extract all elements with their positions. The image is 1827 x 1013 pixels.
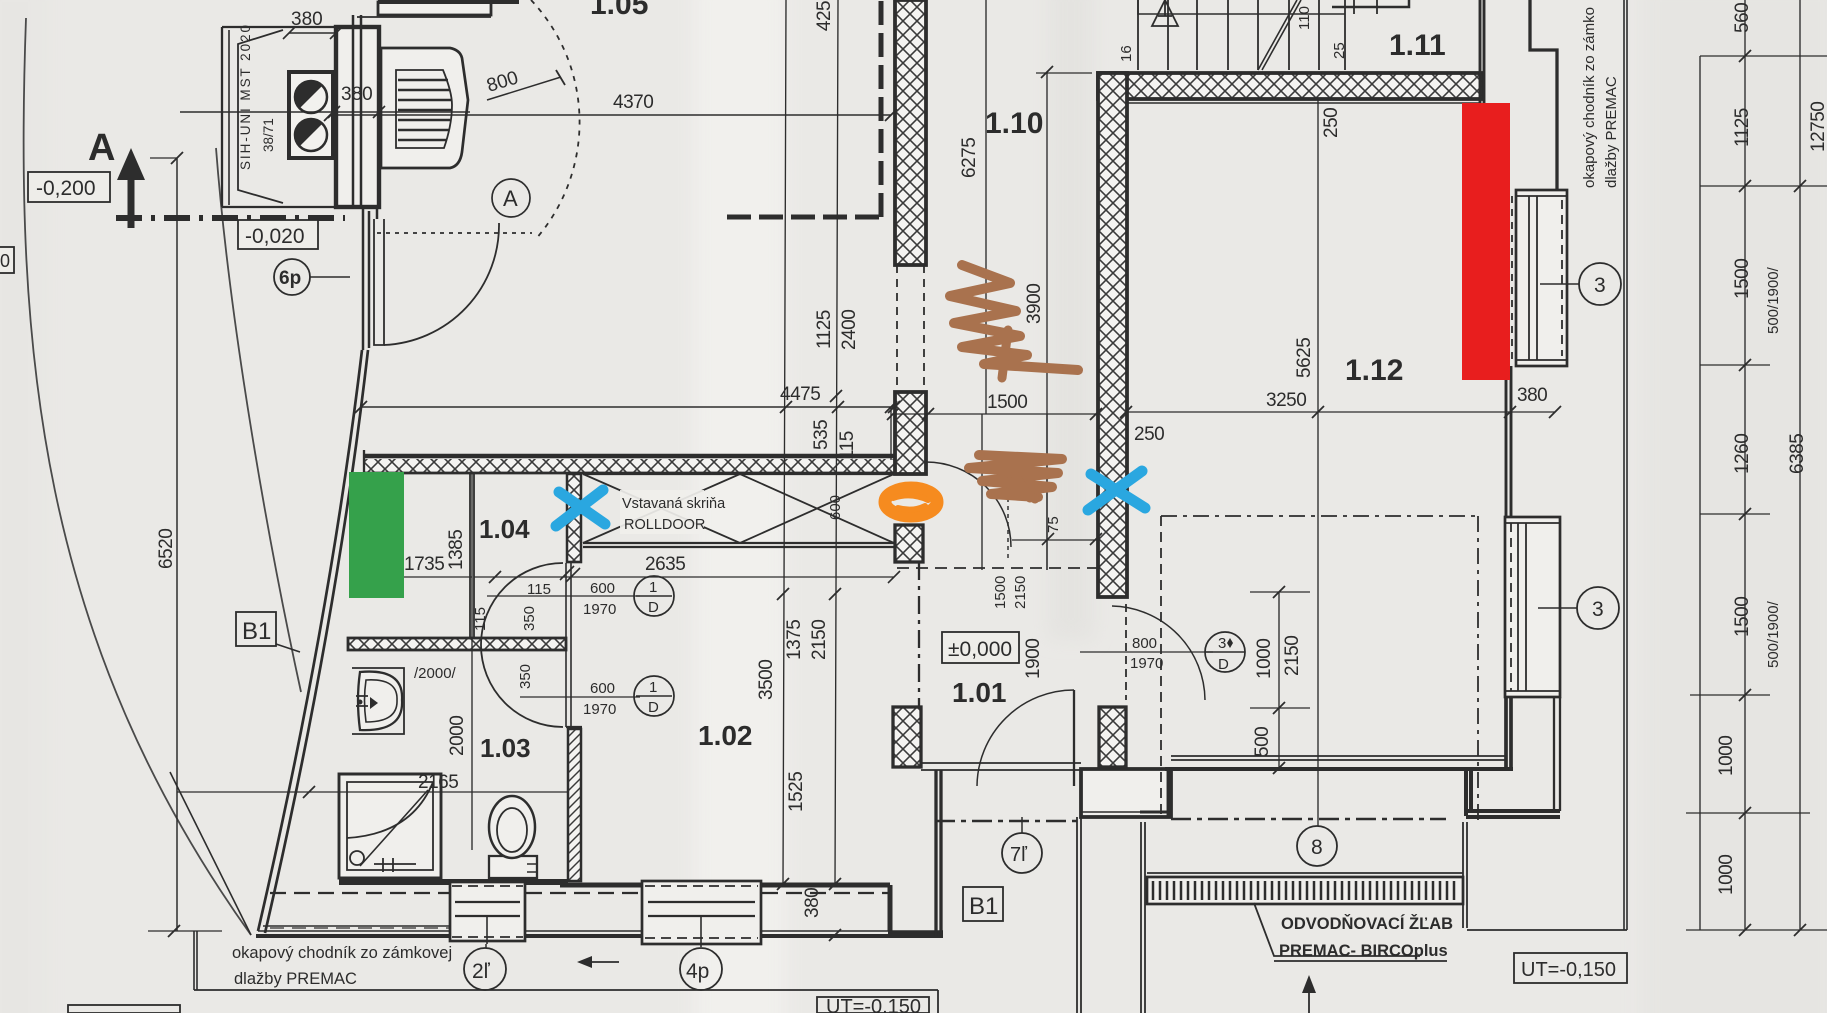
svg-text:-0,020: -0,020 — [245, 225, 305, 248]
svg-text:±0,000: ±0,000 — [948, 638, 1012, 661]
svg-text:/2000/: /2000/ — [414, 665, 457, 682]
svg-text:A: A — [503, 186, 518, 211]
svg-text:1125: 1125 — [1732, 108, 1753, 147]
svg-text:1500: 1500 — [992, 576, 1009, 609]
svg-text:500/1900/: 500/1900/ — [1765, 600, 1782, 668]
svg-text:okapový chodník zo zámkovej: okapový chodník zo zámkovej — [232, 944, 452, 962]
svg-text:380: 380 — [341, 84, 373, 105]
svg-text:2635: 2635 — [645, 554, 685, 575]
svg-text:5625: 5625 — [1294, 338, 1315, 378]
svg-text:D: D — [648, 599, 659, 616]
svg-text:1500: 1500 — [1732, 597, 1753, 637]
svg-text:3: 3 — [1218, 635, 1226, 652]
svg-text:1000: 1000 — [1254, 639, 1275, 679]
svg-text:25: 25 — [1331, 42, 1348, 59]
svg-text:3: 3 — [1592, 598, 1604, 621]
svg-text:7ľ: 7ľ — [1010, 844, 1028, 866]
svg-text:D: D — [1218, 656, 1229, 673]
svg-text:3250: 3250 — [1266, 390, 1306, 411]
svg-text:2165: 2165 — [418, 772, 458, 793]
svg-text:1.04: 1.04 — [479, 514, 530, 544]
svg-text:600: 600 — [827, 495, 844, 520]
svg-text:B1: B1 — [969, 893, 998, 920]
svg-text:UT=-0,150: UT=-0,150 — [1521, 959, 1616, 981]
svg-text:380: 380 — [802, 888, 823, 918]
svg-text:115: 115 — [472, 607, 489, 631]
svg-text:0: 0 — [0, 251, 10, 271]
svg-text:1.11: 1.11 — [1389, 29, 1446, 62]
svg-text:1.01: 1.01 — [952, 677, 1007, 708]
svg-text:6520: 6520 — [156, 529, 177, 569]
svg-text:dlažby PREMAC: dlažby PREMAC — [1603, 76, 1620, 188]
svg-text:1.02: 1.02 — [698, 720, 753, 751]
svg-text:1000: 1000 — [1716, 855, 1737, 895]
svg-text:1735: 1735 — [404, 554, 444, 575]
svg-text:1375: 1375 — [784, 620, 805, 660]
svg-text:3: 3 — [1594, 274, 1606, 297]
svg-text:250: 250 — [1134, 424, 1164, 445]
svg-text:1500: 1500 — [987, 392, 1027, 413]
svg-text:D: D — [648, 699, 659, 716]
svg-text:ROLLDOOR: ROLLDOOR — [624, 517, 705, 533]
svg-text:38/71: 38/71 — [261, 118, 276, 152]
svg-text:1525: 1525 — [786, 772, 807, 812]
svg-text:1970: 1970 — [1130, 655, 1163, 672]
svg-text:PREMAC- BIRCOplus: PREMAC- BIRCOplus — [1279, 942, 1448, 960]
svg-text:UT=-0,150: UT=-0,150 — [826, 996, 921, 1013]
svg-text:600: 600 — [590, 680, 615, 697]
svg-text:B1: B1 — [242, 618, 271, 645]
svg-text:6p: 6p — [279, 268, 301, 289]
svg-text:12750: 12750 — [1808, 102, 1827, 152]
svg-text:2150: 2150 — [809, 620, 830, 660]
svg-text:110: 110 — [1296, 6, 1313, 30]
svg-text:1.05: 1.05 — [590, 0, 648, 21]
svg-text:2400: 2400 — [839, 310, 860, 350]
svg-text:1385: 1385 — [446, 530, 467, 570]
svg-text:Vstavaná skriňa: Vstavaná skriňa — [622, 496, 726, 512]
svg-text:800: 800 — [1132, 635, 1157, 652]
svg-text:250: 250 — [1321, 108, 1342, 138]
svg-text:4p: 4p — [686, 960, 709, 983]
svg-text:1900: 1900 — [1023, 639, 1044, 679]
svg-text:2150: 2150 — [1012, 576, 1029, 609]
svg-text:6275: 6275 — [959, 138, 980, 178]
svg-text:1: 1 — [649, 679, 657, 696]
svg-text:1: 1 — [649, 579, 657, 596]
svg-text:380: 380 — [1517, 385, 1547, 406]
svg-text:535: 535 — [811, 420, 832, 450]
svg-text:115: 115 — [837, 431, 858, 460]
svg-text:ODVODŇOVACÍ ŽĽAB: ODVODŇOVACÍ ŽĽAB — [1281, 914, 1453, 933]
svg-text:2000: 2000 — [447, 716, 468, 756]
svg-text:3900: 3900 — [1024, 284, 1045, 324]
svg-text:1.10: 1.10 — [985, 107, 1043, 140]
svg-text:380: 380 — [291, 9, 323, 30]
svg-text:1.03: 1.03 — [480, 733, 531, 763]
svg-text:1970: 1970 — [583, 601, 616, 618]
svg-text:8: 8 — [1311, 836, 1323, 859]
svg-text:4475: 4475 — [780, 384, 820, 405]
svg-text:16: 16 — [1118, 45, 1135, 62]
svg-text:1500: 1500 — [1732, 259, 1753, 299]
svg-text:2ľ: 2ľ — [472, 960, 491, 983]
svg-text:500: 500 — [1252, 727, 1273, 757]
svg-text:350: 350 — [517, 664, 534, 689]
svg-text:600: 600 — [590, 580, 615, 597]
svg-text:350: 350 — [521, 606, 538, 631]
svg-text:1125: 1125 — [814, 310, 835, 349]
svg-text:6385: 6385 — [1787, 434, 1808, 474]
svg-text:560: 560 — [1732, 3, 1753, 33]
svg-text:4370: 4370 — [613, 92, 653, 113]
svg-text:dlažby PREMAC: dlažby PREMAC — [234, 970, 357, 988]
svg-text:75: 75 — [1045, 516, 1062, 533]
svg-text:1000: 1000 — [1716, 736, 1737, 776]
svg-text:okapový chodník zo zámko: okapový chodník zo zámko — [1581, 7, 1598, 188]
svg-text:1970: 1970 — [583, 701, 616, 718]
svg-text:2150: 2150 — [1282, 636, 1303, 676]
svg-text:1.12: 1.12 — [1345, 354, 1403, 387]
svg-text:-0,200: -0,200 — [36, 177, 96, 200]
svg-text:SIH-UNI MST 2020: SIH-UNI MST 2020 — [238, 25, 253, 170]
svg-text:3500: 3500 — [756, 660, 777, 700]
svg-text:425: 425 — [814, 1, 835, 31]
svg-text:500/1900/: 500/1900/ — [1765, 266, 1782, 334]
svg-text:A: A — [88, 127, 115, 169]
svg-text:1260: 1260 — [1732, 434, 1753, 474]
